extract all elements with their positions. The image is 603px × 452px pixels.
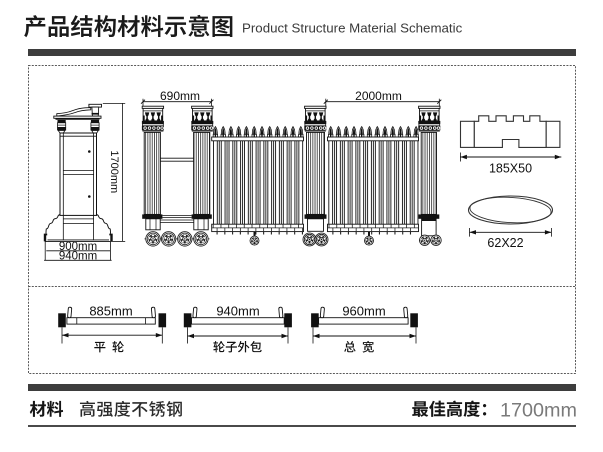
svg-text:2000mm: 2000mm (355, 89, 402, 103)
svg-text:Product Structure Material Sch: Product Structure Material Schematic (242, 21, 463, 36)
svg-text:1700mm: 1700mm (500, 400, 577, 422)
svg-text:940mm: 940mm (216, 303, 259, 318)
svg-text:185X50: 185X50 (489, 161, 532, 175)
svg-text:960mm: 960mm (342, 303, 385, 318)
svg-text:940mm: 940mm (59, 250, 97, 262)
svg-text:1700mm: 1700mm (108, 150, 120, 193)
svg-text:690mm: 690mm (160, 89, 200, 103)
svg-text:62X22: 62X22 (487, 236, 523, 250)
svg-text:885mm: 885mm (89, 303, 132, 318)
